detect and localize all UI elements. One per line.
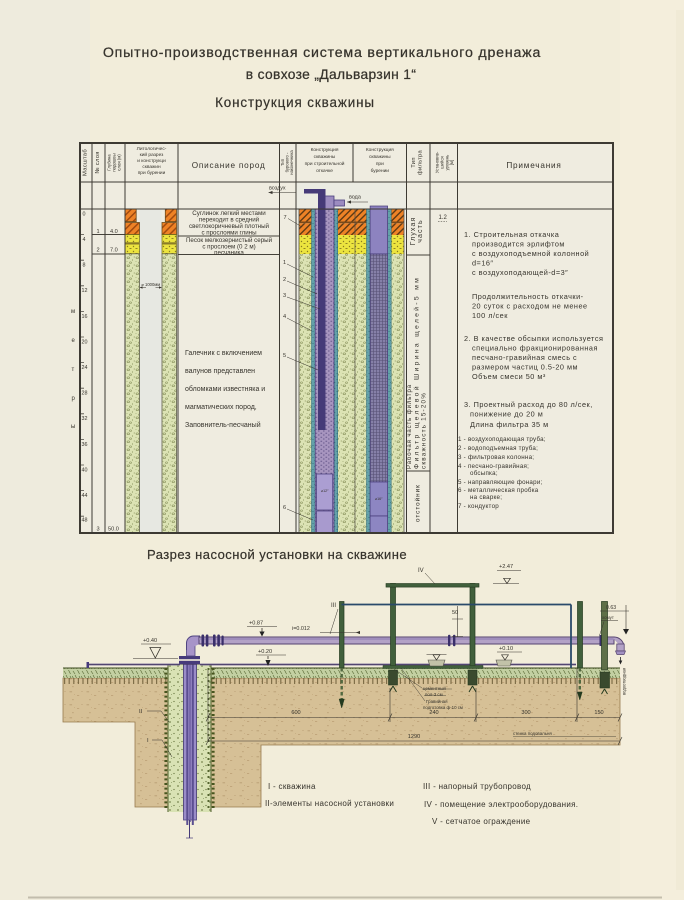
svg-text:⌀16″: ⌀16″ bbox=[375, 497, 383, 501]
svg-text:Рабочая часть фильтра: Рабочая часть фильтра bbox=[407, 384, 413, 469]
svg-text:Описание пород: Описание пород bbox=[192, 161, 266, 170]
svg-text:валунов представлен: валунов представлен bbox=[185, 368, 255, 375]
svg-text:2. В качестве обсыпки использу: 2. В качестве обсыпки используется bbox=[464, 334, 603, 343]
svg-text:2: 2 bbox=[97, 248, 100, 254]
svg-text:кий разрез: кий разрез bbox=[140, 151, 165, 158]
svg-text:понижение до 20 м: понижение до 20 м bbox=[470, 410, 543, 419]
svg-text:песчаника: песчаника bbox=[214, 250, 244, 257]
svg-text:48: 48 bbox=[82, 518, 88, 524]
svg-text:часть: часть bbox=[417, 219, 424, 242]
svg-text:в совхозе „Дальварзин 1“: в совхозе „Дальварзин 1“ bbox=[246, 67, 417, 82]
svg-text:№ слоя: № слоя bbox=[95, 151, 101, 173]
svg-text:и конструкци: и конструкци bbox=[137, 159, 166, 164]
svg-text:⌀12″: ⌀12″ bbox=[321, 489, 329, 493]
svg-text:4 - песчано-гравийная;: 4 - песчано-гравийная; bbox=[458, 463, 529, 470]
svg-text:II-элементы насосной установки: II-элементы насосной установки bbox=[265, 799, 394, 808]
svg-text:1: 1 bbox=[97, 229, 100, 235]
svg-text:7 - кондуктор: 7 - кондуктор bbox=[458, 503, 499, 510]
svg-text:V - сетчатое ограждение: V - сетчатое ограждение bbox=[432, 817, 531, 826]
svg-text:Продолжительность откачки-: Продолжительность откачки- bbox=[472, 292, 584, 301]
svg-text:при: при bbox=[376, 162, 384, 167]
svg-text:[м]: [м] bbox=[449, 160, 454, 165]
svg-text:при бурении: при бурении bbox=[138, 170, 166, 176]
svg-text:Масштаб: Масштаб bbox=[83, 149, 89, 176]
svg-text:III: III bbox=[331, 603, 336, 609]
svg-text:цементный: цементный bbox=[423, 686, 446, 691]
svg-text:песчано-гравийная смесь с: песчано-гравийная смесь с bbox=[472, 353, 577, 362]
svg-text:600: 600 bbox=[291, 710, 300, 716]
svg-text:специально фракционированная: специально фракционированная bbox=[472, 344, 598, 353]
svg-text:на сварке;: на сварке; bbox=[470, 494, 502, 501]
svg-text:скважины: скважины bbox=[369, 155, 391, 160]
svg-text:Примечания: Примечания bbox=[506, 161, 561, 170]
svg-text:32: 32 bbox=[82, 416, 88, 422]
svg-text:150: 150 bbox=[594, 710, 603, 716]
svg-text:Заповнитель-песчаный: Заповнитель-песчаный bbox=[185, 421, 261, 429]
svg-text:производится эрлифтом: производится эрлифтом bbox=[472, 240, 565, 249]
svg-text:т: т bbox=[72, 367, 75, 373]
svg-text:1: 1 bbox=[283, 260, 286, 266]
svg-text:2 - водоподъемная труба;: 2 - водоподъемная труба; bbox=[458, 445, 538, 452]
svg-text:бурении: бурении bbox=[371, 168, 390, 174]
svg-text:+0.20: +0.20 bbox=[258, 649, 272, 655]
svg-text:3: 3 bbox=[283, 293, 286, 299]
svg-text:магматических пород,: магматических пород, bbox=[185, 404, 257, 411]
svg-text:0.63: 0.63 bbox=[606, 605, 616, 611]
svg-text:0: 0 bbox=[83, 212, 86, 218]
svg-text:хомут: хомут bbox=[602, 615, 614, 620]
svg-text:пол-3 см: пол-3 см bbox=[425, 692, 443, 697]
svg-text:Конструкция: Конструкция bbox=[311, 147, 339, 153]
svg-text:м: м bbox=[71, 309, 75, 315]
svg-text:воздух: воздух bbox=[269, 186, 286, 192]
svg-text:8: 8 bbox=[83, 263, 86, 269]
svg-text:скважины: скважины bbox=[314, 155, 336, 160]
svg-text:7: 7 bbox=[284, 215, 287, 221]
svg-text:наконечника: наконечника bbox=[289, 150, 294, 175]
svg-text:20: 20 bbox=[82, 339, 88, 345]
svg-text:Литологичес-: Литологичес- bbox=[137, 146, 167, 152]
svg-text:5 - направляющие фонари;: 5 - направляющие фонари; bbox=[458, 479, 543, 486]
svg-text:300: 300 bbox=[521, 710, 530, 716]
svg-text:обсыпка;: обсыпка; bbox=[470, 470, 498, 477]
svg-text:Глухая: Глухая bbox=[410, 217, 417, 246]
svg-text:1.2: 1.2 bbox=[439, 215, 448, 221]
svg-text:28: 28 bbox=[82, 391, 88, 397]
svg-text:с прослоями глины: с прослоями глины bbox=[201, 230, 257, 237]
svg-text:размером частиц 0.5-20 мм: размером частиц 0.5-20 мм bbox=[472, 363, 578, 372]
svg-text:d=16″: d=16″ bbox=[472, 259, 494, 268]
svg-text:I - скважина: I - скважина bbox=[268, 782, 316, 791]
svg-text:40: 40 bbox=[82, 467, 88, 473]
svg-text:отстойник: отстойник bbox=[414, 484, 422, 522]
svg-text:при строительной: при строительной bbox=[305, 160, 345, 167]
svg-text:16: 16 bbox=[82, 314, 88, 320]
svg-text:i=0.012: i=0.012 bbox=[292, 626, 310, 632]
svg-text:стенка подовальня: стенка подовальня bbox=[513, 731, 552, 736]
svg-text:+0.87: +0.87 bbox=[249, 621, 263, 627]
svg-text:4.0: 4.0 bbox=[110, 229, 118, 235]
svg-text:II: II bbox=[139, 709, 143, 715]
svg-text:4: 4 bbox=[283, 314, 286, 320]
svg-text:2: 2 bbox=[283, 277, 286, 283]
svg-text:ы: ы bbox=[71, 424, 75, 430]
svg-text:водоотводная: водоотводная bbox=[622, 668, 627, 695]
svg-text:12: 12 bbox=[82, 288, 88, 294]
svg-text:+0.40: +0.40 bbox=[143, 638, 157, 644]
svg-text:Гравийная: Гравийная bbox=[426, 699, 448, 704]
svg-text:36: 36 bbox=[82, 442, 88, 448]
svg-text:Опытно-производственная систем: Опытно-производственная система вертикал… bbox=[103, 45, 541, 61]
svg-text:⌀ 1000мм: ⌀ 1000мм bbox=[141, 282, 160, 287]
svg-text:20 суток с расходом не менее: 20 суток с расходом не менее bbox=[472, 302, 588, 311]
svg-text:5: 5 bbox=[283, 353, 286, 359]
svg-text:24: 24 bbox=[82, 365, 88, 371]
svg-text:фильтра: фильтра bbox=[418, 149, 424, 175]
svg-text:скважность 15-20%: скважность 15-20% bbox=[421, 392, 428, 469]
svg-text:Объем смеси 50 м³: Объем смеси 50 м³ bbox=[472, 372, 546, 381]
svg-text:240: 240 bbox=[429, 710, 438, 716]
svg-text:с воздухоподающей-d=3″: с воздухоподающей-d=3″ bbox=[472, 268, 568, 277]
svg-text:откачке: откачке bbox=[316, 169, 333, 174]
svg-text:50.0: 50.0 bbox=[108, 527, 119, 533]
svg-text:IV - помещение электрооборуд: IV - помещение электрооборудования. bbox=[424, 800, 578, 809]
svg-text:4: 4 bbox=[83, 237, 86, 243]
svg-text:3: 3 bbox=[97, 527, 100, 533]
svg-text:3. Проектный расход до 80 л/се: 3. Проектный расход до 80 л/сек, bbox=[464, 400, 593, 409]
svg-text:7.0: 7.0 bbox=[110, 248, 118, 254]
svg-text:1. Строительная откачка: 1. Строительная откачка bbox=[464, 230, 560, 239]
svg-text:скважин: скважин bbox=[142, 165, 161, 170]
svg-text:Конструкция скважины: Конструкция скважины bbox=[215, 95, 375, 110]
svg-text:Длина фильтра 35 м: Длина фильтра 35 м bbox=[470, 420, 549, 429]
svg-text:44: 44 bbox=[82, 493, 88, 499]
svg-text:3 - фильтровая колонна;: 3 - фильтровая колонна; bbox=[458, 454, 534, 461]
svg-text:Галечник с включением: Галечник с включением bbox=[185, 350, 262, 357]
svg-text:+2.47: +2.47 bbox=[499, 564, 513, 570]
svg-text:IV: IV bbox=[418, 568, 424, 574]
svg-text:Тип: Тип bbox=[411, 157, 417, 168]
svg-text:слоя (м): слоя (м) bbox=[117, 154, 122, 171]
svg-text:Разрез насосной установки на с: Разрез насосной установки на скважине bbox=[147, 547, 407, 562]
svg-text:6: 6 bbox=[283, 505, 286, 511]
svg-text:III - напорный трубопровод: III - напорный трубопровод bbox=[423, 782, 531, 791]
svg-text:1 - воздухоподающая труба;: 1 - воздухоподающая труба; bbox=[458, 436, 546, 443]
svg-text:6 - металлическая пробка: 6 - металлическая пробка bbox=[458, 487, 539, 494]
svg-text:Фильтр щелевой Ширина щелей-5: Фильтр щелевой Ширина щелей-5 мм bbox=[413, 276, 421, 469]
svg-text:обломками известняка и: обломками известняка и bbox=[185, 385, 265, 393]
svg-text:100 л/сек: 100 л/сек bbox=[472, 311, 508, 320]
svg-text:вода: вода bbox=[349, 195, 361, 201]
svg-text:+0.10: +0.10 bbox=[499, 646, 513, 652]
svg-text:1290: 1290 bbox=[408, 734, 420, 740]
svg-text:Конструкция: Конструкция bbox=[366, 147, 394, 153]
svg-text:с воздухоподъемной колонной: с воздухоподъемной колонной bbox=[472, 249, 589, 258]
